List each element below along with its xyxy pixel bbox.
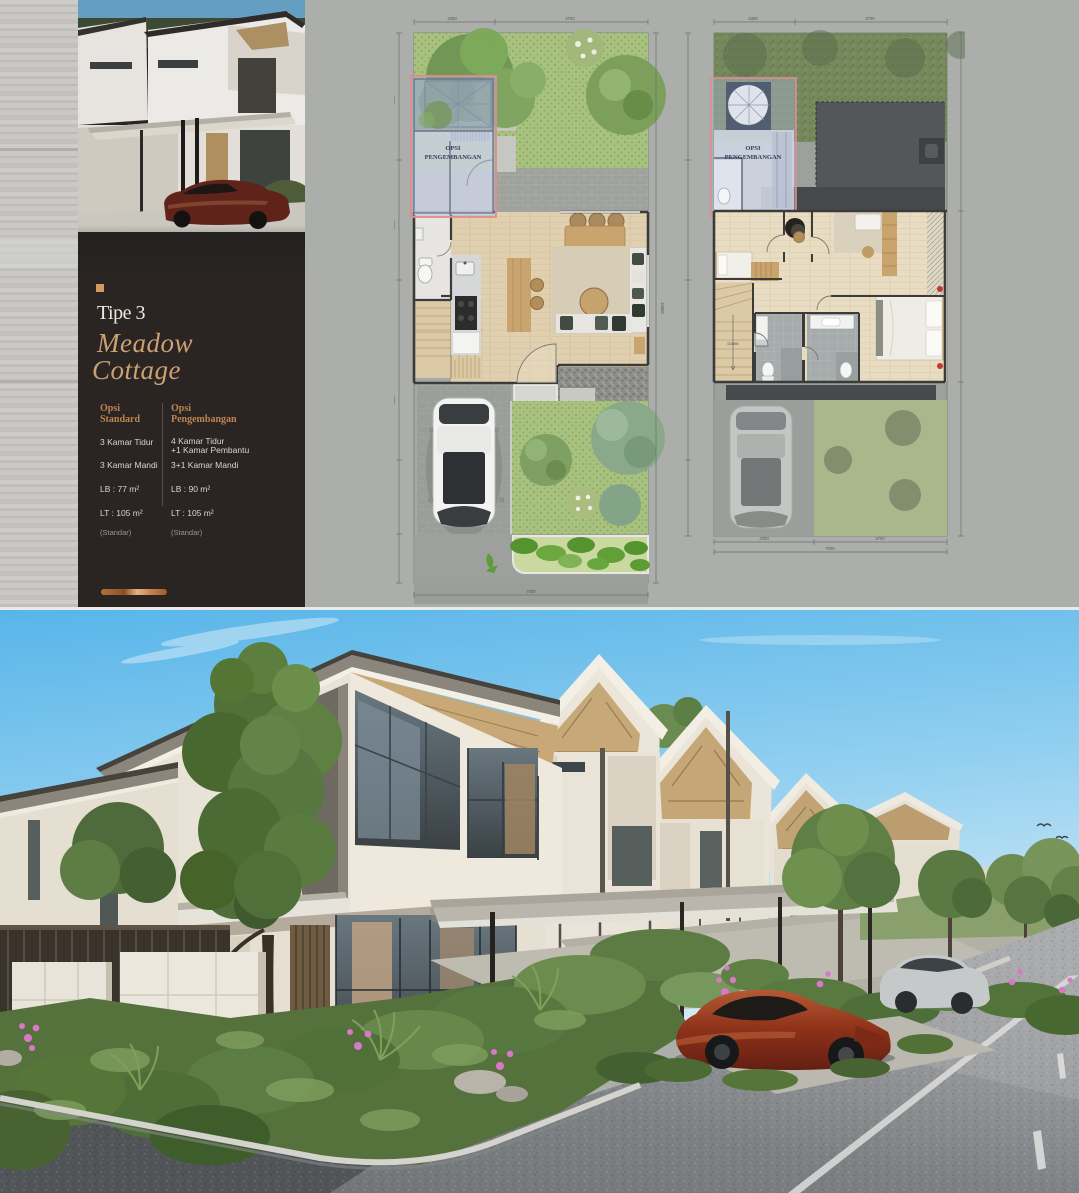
svg-text:4300: 4300 [759, 536, 769, 541]
svg-text:4000: 4000 [964, 455, 965, 465]
svg-text:7000: 7000 [825, 546, 835, 551]
svg-text:2300: 2300 [748, 16, 758, 21]
svg-text:2700: 2700 [875, 536, 885, 541]
svg-text:15000: 15000 [660, 302, 665, 314]
svg-text:4700: 4700 [565, 16, 575, 21]
svg-text:2300: 2300 [447, 16, 457, 21]
svg-text:PENGEMBANGAN: PENGEMBANGAN [425, 154, 482, 161]
svg-text:PENGEMBANGAN: PENGEMBANGAN [725, 154, 782, 161]
svg-text:4800: 4800 [394, 395, 396, 405]
svg-text:7000: 7000 [526, 589, 536, 594]
svg-text:OPSI: OPSI [745, 145, 761, 152]
svg-text:5000: 5000 [964, 295, 965, 305]
svg-text:5000: 5000 [394, 95, 396, 105]
svg-text:OPSI: OPSI [445, 145, 461, 152]
svg-text:3200: 3200 [964, 115, 965, 125]
svg-text:2900: 2900 [394, 220, 396, 230]
svg-text:4700: 4700 [865, 16, 875, 21]
svg-text:DOWN: DOWN [727, 342, 739, 346]
